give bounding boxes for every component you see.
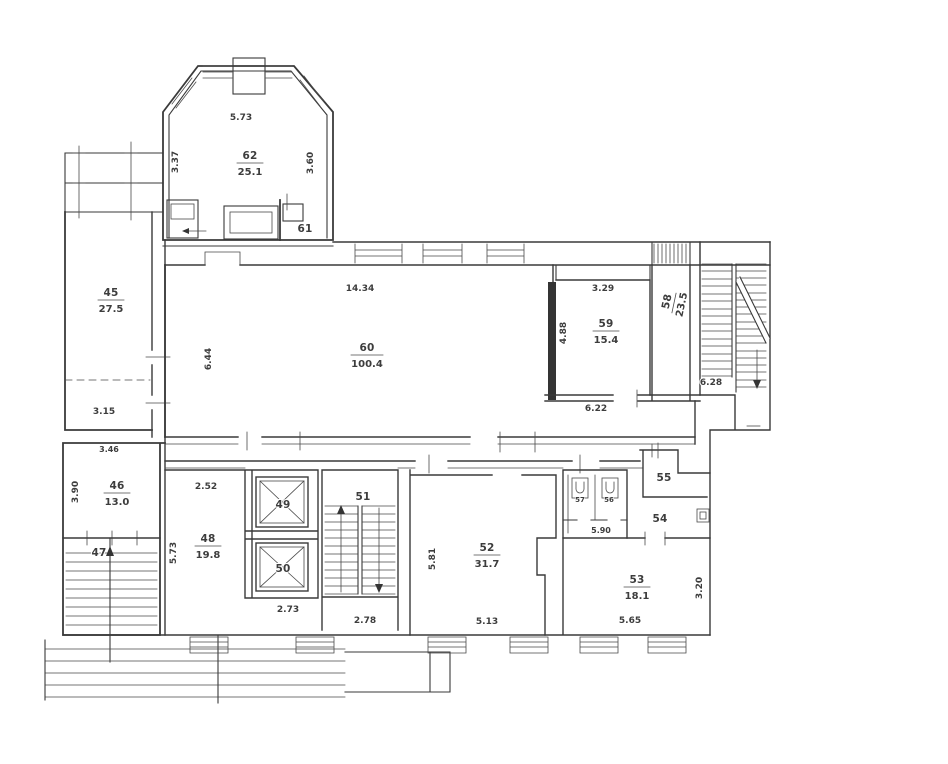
stairs-47 [66,538,157,662]
room-57-number: 57 [575,496,585,504]
room-46-number: 46 [109,480,124,492]
room-60-area: 100.4 [351,359,383,370]
room-58-area: 23.5 [674,292,690,318]
floor-plan-svg: 62 25.1 5.73 3.37 3.60 61 14.34 60 100.4… [0,0,948,764]
stair-down-arrow [375,508,383,593]
dim-2-78: 2.78 [354,616,376,626]
toilet-icon [572,478,588,498]
room-46-area: 13.0 [105,497,130,508]
room-61-number: 61 [297,223,312,235]
dim-4-88: 4.88 [559,322,569,344]
room-45-number: 45 [103,287,118,299]
exit-arrow-icon [182,228,206,234]
room-62-furniture [167,194,303,240]
dim-3-46: 3.46 [99,445,119,454]
left-wing-walls [63,212,170,635]
room-48-area: 19.8 [196,550,221,561]
dim-5-90: 5.90 [591,526,611,535]
dim-6-44: 6.44 [204,348,214,370]
dim-3-90: 3.90 [71,481,81,503]
dim-3-20: 3.20 [695,577,705,599]
room-47-number: 47 [91,547,106,559]
room-49-number: 49 [275,499,290,511]
room-62-area: 25.1 [238,167,263,178]
room-53-area: 18.1 [625,591,650,602]
room-54-number: 54 [652,513,667,525]
entry-porch [45,635,450,703]
dim-5-73-left: 5.73 [169,542,179,564]
dim-5-13: 5.13 [476,617,498,627]
dim-3-15: 3.15 [93,407,115,417]
room-53-number: 53 [629,574,644,586]
window-band [165,242,770,280]
elevator-block [165,470,318,598]
dim-3-29: 3.29 [592,284,614,294]
toilet-icon [602,478,618,498]
room-55-number: 55 [656,472,671,484]
corridor-walls [165,444,652,473]
dim-6-28: 6.28 [700,378,722,388]
dim-5-73-top: 5.73 [230,113,252,123]
dim-3-60: 3.60 [306,152,316,174]
dim-6-22: 6.22 [585,404,607,414]
room-45-area: 27.5 [99,304,124,315]
room-52-number: 52 [479,542,494,554]
hall-60-walls [165,265,695,452]
room-58-label: 58 23.5 [659,288,691,318]
dim-2-73: 2.73 [277,605,299,615]
dim-5-81: 5.81 [428,548,438,570]
stair-up-arrow [337,505,345,592]
dim-3-37: 3.37 [171,151,181,173]
room-58-number: 58 [660,293,675,310]
dim-2-52: 2.52 [195,482,217,492]
terrace-railing [65,142,163,220]
room-59-area: 15.4 [594,335,619,346]
room-48-number: 48 [200,533,215,545]
room-52-area: 31.7 [475,559,500,570]
stairs-right [700,242,770,635]
dim-5-65: 5.65 [619,616,641,626]
room-62-number: 62 [242,150,257,162]
stair-direction-arrow [753,350,761,389]
bottom-windows [190,637,686,653]
room-59-58-walls [545,265,700,444]
room-51-number: 51 [355,491,370,503]
room-56-number: 56 [604,496,614,504]
room-59-number: 59 [598,318,613,330]
floor-plan: 62 25.1 5.73 3.37 3.60 61 14.34 60 100.4… [0,0,948,764]
dim-14-34: 14.34 [346,284,374,294]
room-60-number: 60 [359,342,374,354]
room-50-number: 50 [275,563,290,575]
